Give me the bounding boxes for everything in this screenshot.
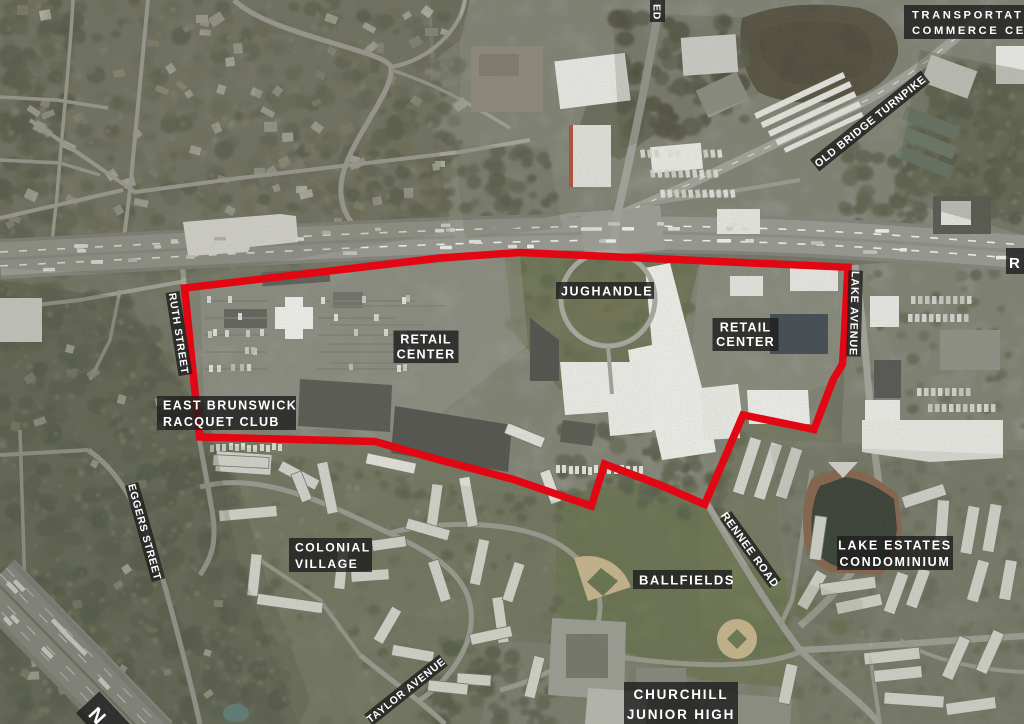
svg-text:CENTER: CENTER [397, 347, 456, 361]
svg-text:LAKE AVENUE: LAKE AVENUE [847, 271, 861, 356]
svg-text:CENTER: CENTER [716, 335, 775, 349]
svg-text:RETAIL: RETAIL [720, 320, 771, 334]
svg-text:CHURCHILL: CHURCHILL [634, 687, 729, 702]
svg-text:RETAIL: RETAIL [400, 333, 451, 347]
svg-text:COLONIAL: COLONIAL [295, 541, 371, 555]
svg-text:COMMERCE CENTER: COMMERCE CENTER [912, 25, 1024, 37]
svg-text:R: R [1009, 255, 1020, 272]
svg-text:CONDOMINIUM: CONDOMINIUM [839, 555, 950, 569]
svg-text:RACQUET CLUB: RACQUET CLUB [163, 415, 280, 429]
svg-text:BALLFIELDS: BALLFIELDS [639, 573, 735, 588]
svg-text:EAST BRUNSWICK: EAST BRUNSWICK [163, 399, 297, 413]
svg-text:LAKE ESTATES: LAKE ESTATES [838, 539, 952, 553]
svg-text:ED: ED [651, 4, 663, 20]
svg-text:TRANSPORTATION: TRANSPORTATION [912, 10, 1024, 22]
svg-text:JUGHANDLE: JUGHANDLE [561, 285, 653, 299]
svg-text:JUNIOR HIGH: JUNIOR HIGH [627, 707, 735, 722]
svg-text:VILLAGE: VILLAGE [295, 557, 358, 571]
